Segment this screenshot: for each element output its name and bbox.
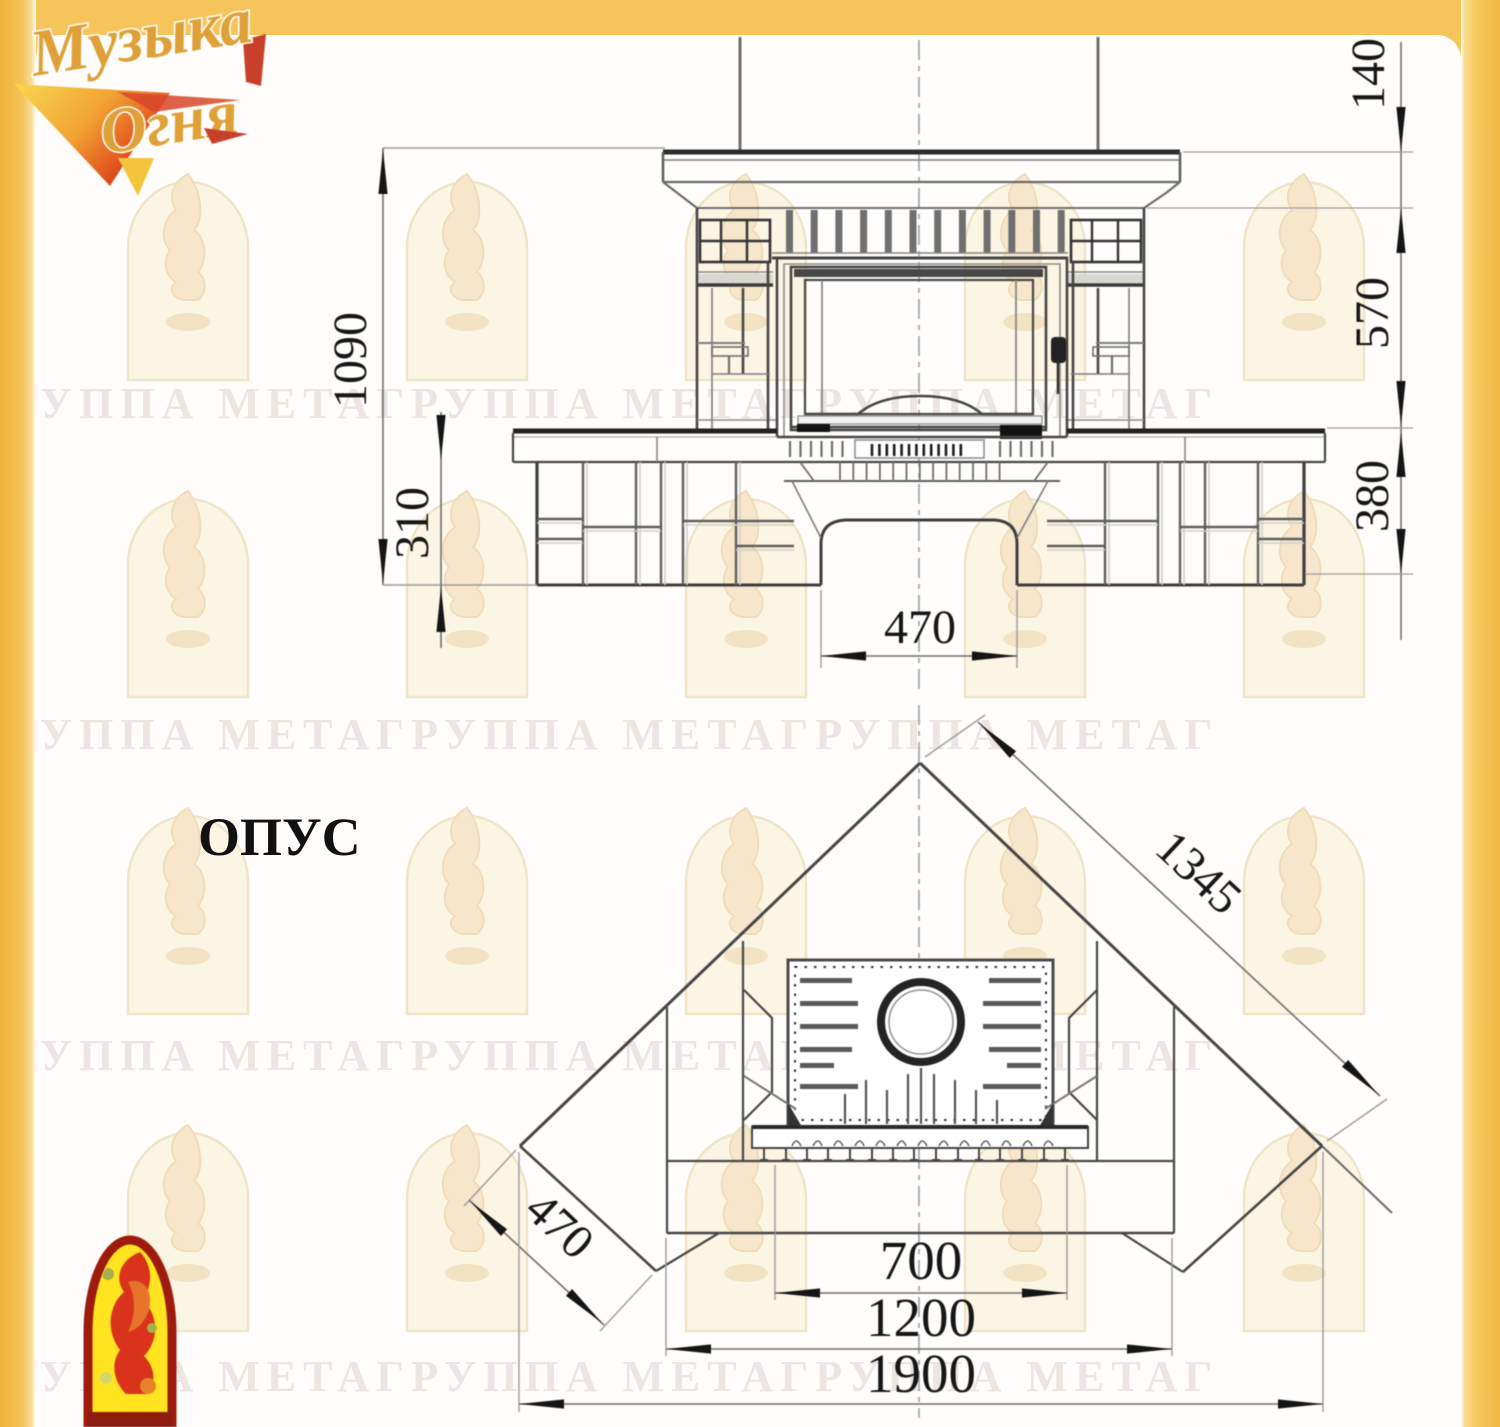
svg-text:470: 470 xyxy=(884,601,956,654)
svg-text:1200: 1200 xyxy=(866,1287,976,1348)
svg-text:Огня: Огня xyxy=(95,76,243,168)
svg-text:470: 470 xyxy=(515,1182,604,1270)
svg-text:1345: 1345 xyxy=(1145,821,1251,925)
svg-text:570: 570 xyxy=(1346,277,1399,349)
svg-text:140: 140 xyxy=(1342,38,1395,110)
svg-text:310: 310 xyxy=(386,487,439,559)
svg-text:380: 380 xyxy=(1346,460,1399,532)
svg-text:1090: 1090 xyxy=(324,312,377,408)
svg-text:700: 700 xyxy=(880,1230,963,1291)
svg-text:1900: 1900 xyxy=(866,1343,976,1404)
